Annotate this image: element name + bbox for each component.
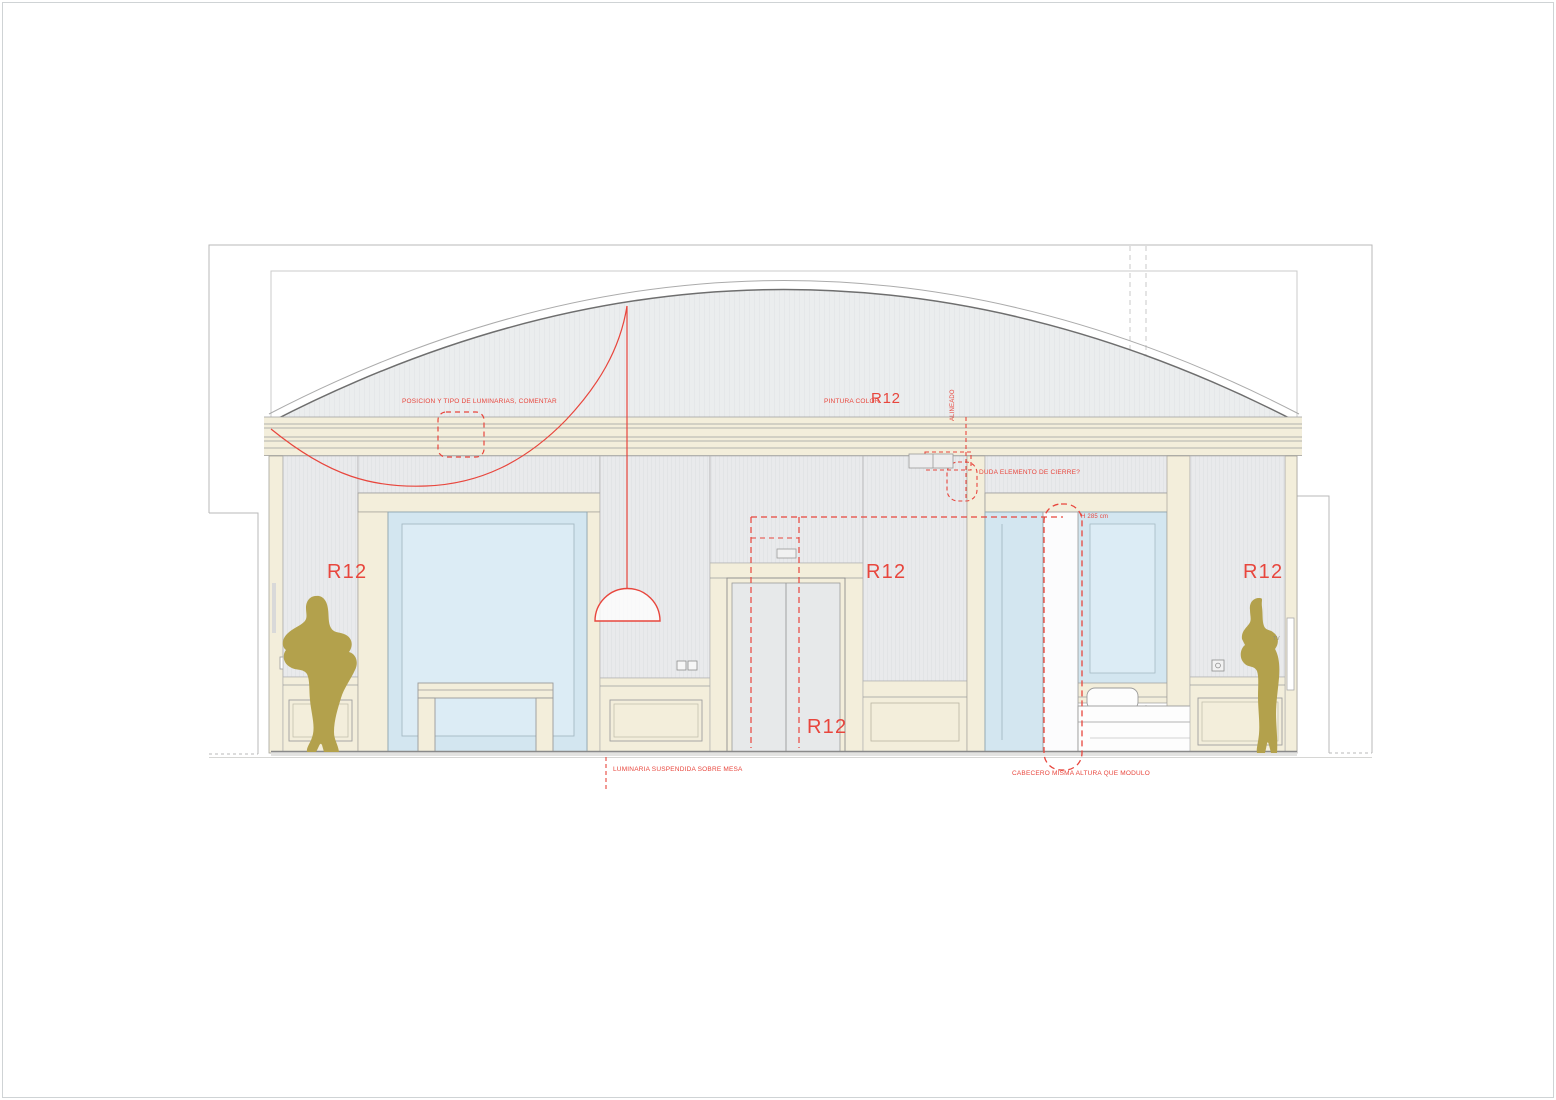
note-luminaires: POSICION Y TIPO DE LUMINARIAS, COMENTAR bbox=[402, 398, 557, 405]
finish-label-left-wall: R12 bbox=[327, 561, 367, 584]
wall-socket bbox=[1212, 660, 1224, 671]
note-alineado: ALINEADO bbox=[950, 389, 956, 421]
curtain-box-fixture bbox=[909, 454, 953, 468]
table-leg-left bbox=[418, 698, 435, 752]
cornice-band bbox=[264, 417, 1302, 456]
left-jamb-detail bbox=[272, 583, 276, 633]
note-luminaria-suspendida: LUMINARIA SUSPENDIDA SOBRE MESA bbox=[613, 766, 743, 773]
finish-label-door: R12 bbox=[807, 716, 847, 739]
table-top bbox=[418, 683, 553, 698]
mid-left-wainscot-panel bbox=[610, 700, 702, 741]
right-annex-outline bbox=[1297, 496, 1329, 753]
table-leg-right bbox=[536, 698, 553, 752]
note-paint-code: R12 bbox=[871, 390, 901, 407]
door-module bbox=[710, 456, 863, 753]
opening-a-left-stile bbox=[358, 512, 388, 753]
left-glazed-opening bbox=[358, 456, 600, 753]
mid-left-wall-upper bbox=[600, 456, 710, 678]
cabecero-column bbox=[1043, 512, 1078, 753]
bedroom-left-stile bbox=[967, 456, 985, 753]
bedroom-head-band bbox=[985, 493, 1190, 512]
cornice bbox=[264, 417, 1302, 456]
note-cabecero: CABECERO MISMA ALTURA QUE MODULO bbox=[1012, 770, 1150, 777]
elevation-drawing bbox=[0, 0, 1556, 1100]
opening-a-upper-wall bbox=[358, 456, 600, 493]
right-cut-edge bbox=[1285, 456, 1297, 753]
door-head-fixture bbox=[777, 549, 796, 558]
finish-label-center-wall: R12 bbox=[866, 561, 906, 584]
tv-label: TV bbox=[1273, 636, 1280, 642]
bedroom-glass-right-inner bbox=[1090, 524, 1155, 673]
middle-right-wall-section bbox=[863, 456, 967, 753]
left-annex-outline bbox=[209, 513, 258, 754]
note-duda-cierre: DUDA ELEMENTO DE CIERRE? bbox=[979, 469, 1080, 476]
opening-a-head-band bbox=[358, 493, 600, 512]
floor bbox=[209, 752, 1372, 758]
opening-a-right-stile bbox=[587, 512, 600, 753]
bedroom-glass-left-pane bbox=[985, 512, 1043, 753]
drawing-sheet: POSICION Y TIPO DE LUMINARIAS, COMENTAR … bbox=[0, 0, 1556, 1100]
note-height: H 285 cm bbox=[1081, 514, 1108, 520]
door-upper-wall bbox=[710, 456, 863, 563]
mid-right-wainscot-panel bbox=[871, 703, 959, 741]
tv-panel bbox=[1287, 618, 1294, 690]
finish-label-right-wall: R12 bbox=[1243, 561, 1283, 584]
